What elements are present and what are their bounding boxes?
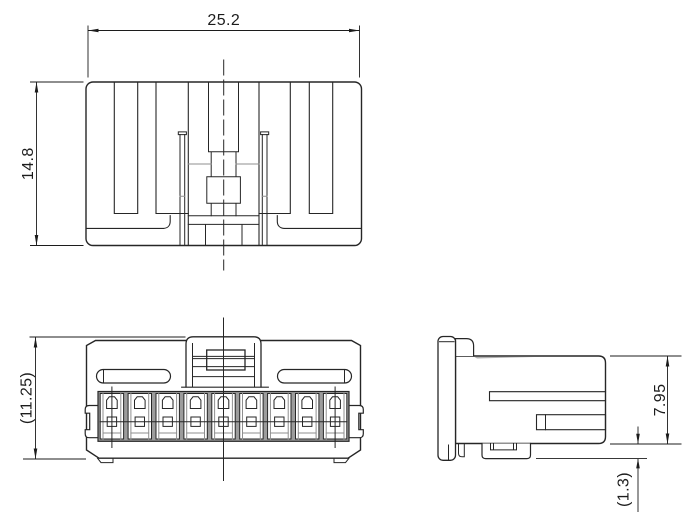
cavity-7 <box>268 394 291 440</box>
dim-side-height: 7.95 <box>610 356 682 444</box>
dim-height-label: 14.8 <box>20 147 37 180</box>
dim-lock-offset-arrow-up <box>636 459 640 469</box>
dim-height-arrow-top <box>35 82 39 93</box>
dim-side-height-arrow-top <box>666 356 670 367</box>
cavity-8 <box>296 394 319 440</box>
front-view <box>85 318 363 481</box>
flange-step <box>459 444 465 457</box>
mounting-flange <box>438 337 456 461</box>
cavity-4 <box>184 394 207 440</box>
dim-front-height-arrow-bottom <box>34 449 38 460</box>
cavity-2 <box>128 394 151 440</box>
dim-lock-offset-arrow-down <box>636 434 640 444</box>
dim-width-arrow-right <box>349 29 360 33</box>
dim-lock-offset-label: (1.3) <box>616 472 633 507</box>
dim-side-height-extensions <box>610 356 682 444</box>
dim-height: 14.8 <box>20 82 84 246</box>
dim-width-arrow-left <box>88 29 99 33</box>
top-view <box>86 60 362 270</box>
retainer-bump <box>456 339 474 356</box>
cavity-3 <box>156 394 179 440</box>
lock-protrusion <box>482 444 531 459</box>
drawing-canvas: 25.2 14.8 (11.25) 7.95 <box>0 0 689 530</box>
side-outline <box>456 356 606 444</box>
dim-height-extensions <box>30 82 84 246</box>
dim-side-height-arrow-bottom <box>666 434 670 445</box>
dim-side-height-label: 7.95 <box>652 384 669 417</box>
side-view <box>438 337 606 461</box>
dim-height-arrow-bottom <box>35 235 39 246</box>
dim-front-height-arrow-top <box>34 337 38 348</box>
drawing-sheet: 25.2 14.8 (11.25) 7.95 <box>0 0 689 530</box>
dim-width-label: 25.2 <box>207 12 240 29</box>
cavity-6 <box>240 394 263 440</box>
dim-front-height-label: (11.25) <box>19 372 36 424</box>
